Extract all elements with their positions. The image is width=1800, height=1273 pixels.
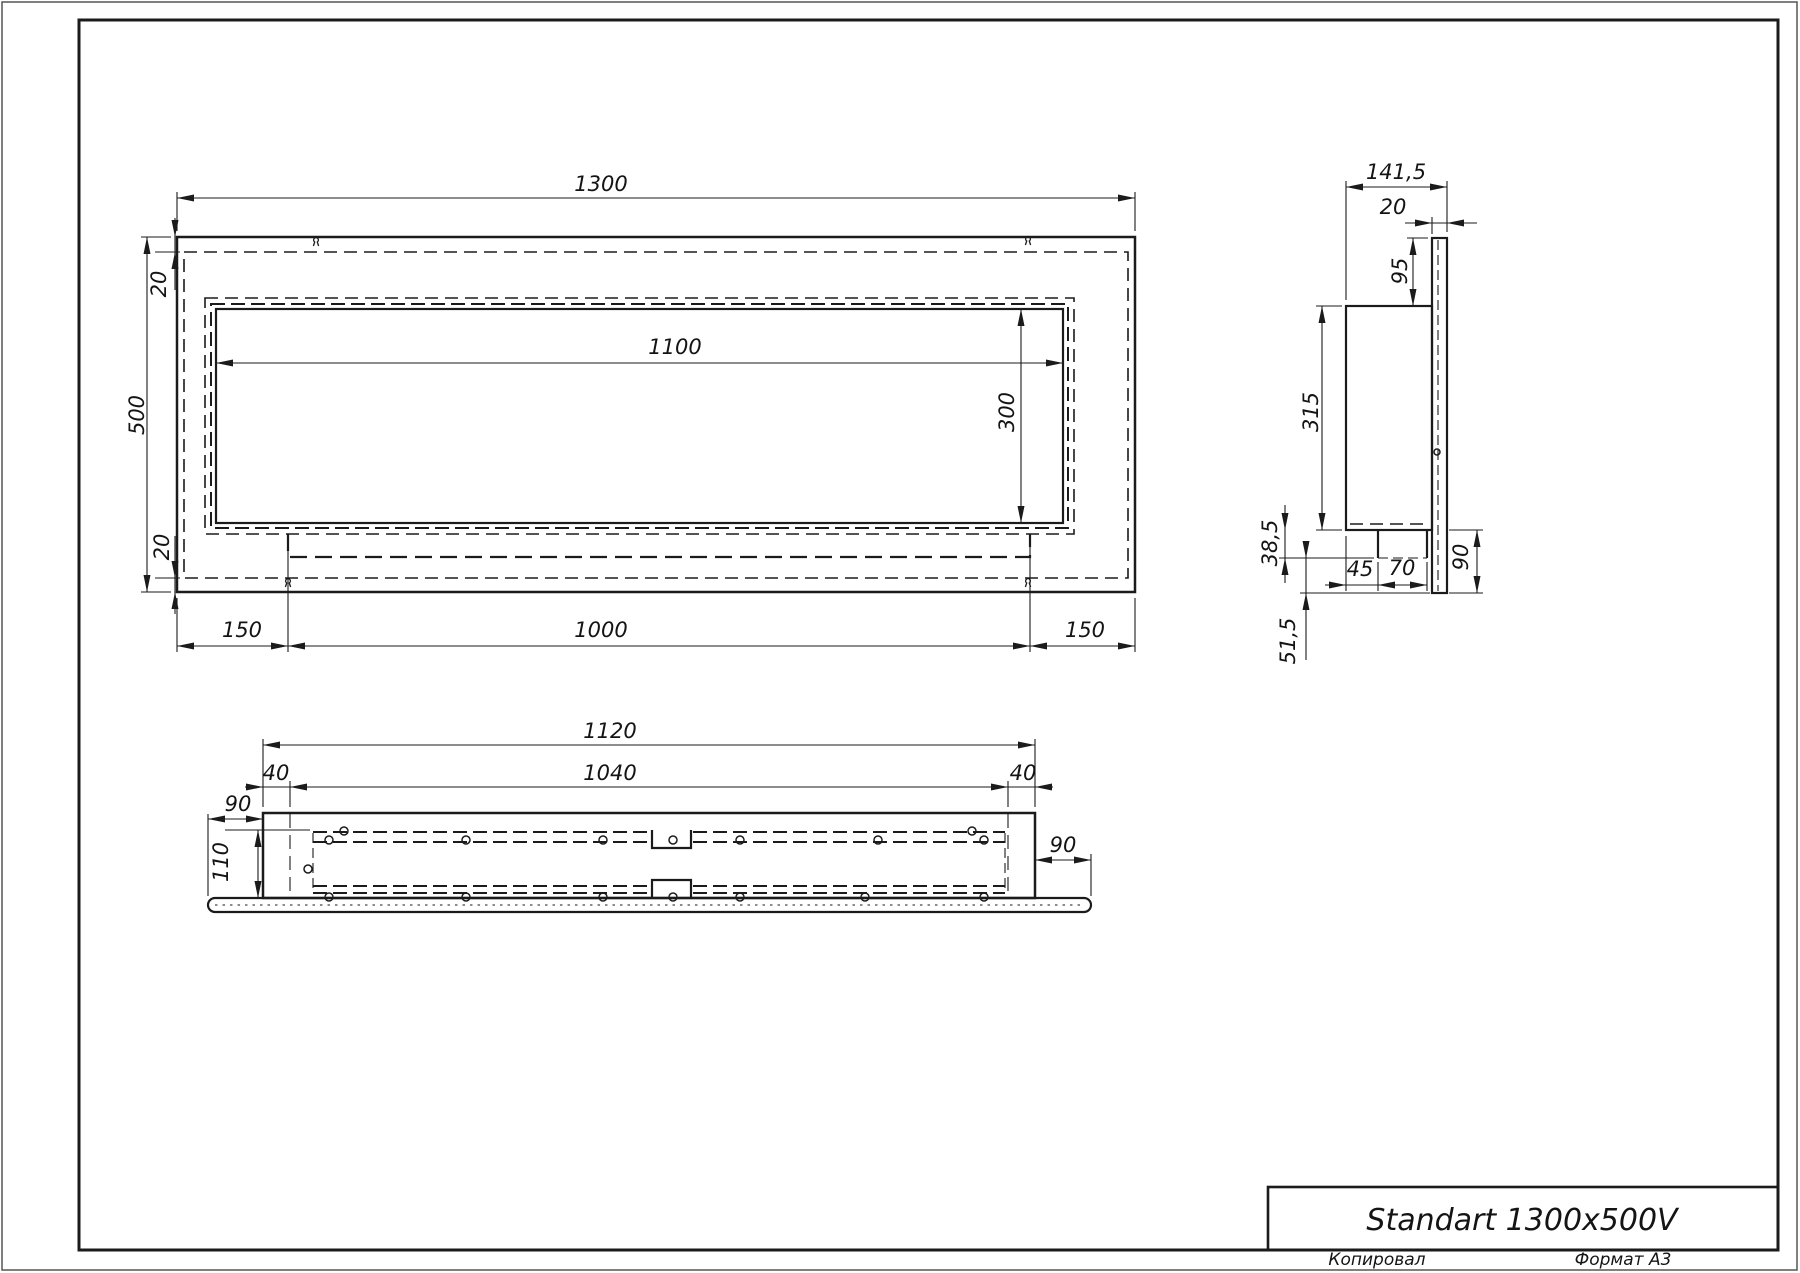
front-dim-top-inset: 20: [147, 218, 180, 297]
side-view: 141,5 20 95 315 38,5 51,5: [1258, 160, 1483, 664]
side-dim-flange: 20: [1380, 195, 1477, 234]
plan-dim-body-width-label: 1120: [583, 719, 636, 743]
side-dim-tank-chain: 45 70: [1325, 536, 1427, 591]
side-dim-tank-width-label: 70: [1389, 556, 1416, 580]
title-block: Standart 1300x500V: [1268, 1187, 1778, 1250]
drawing-canvas: 1300 500 20 20 1100 300: [0, 0, 1800, 1273]
front-view: 1300 500 20 20 1100 300: [125, 172, 1135, 652]
side-dim-tank-inset-label: 45: [1347, 557, 1374, 581]
plan-clip-top: [652, 830, 691, 848]
side-dim-body-height-label: 315: [1299, 392, 1323, 432]
front-dim-bottom-inset: 20: [150, 534, 180, 614]
front-hidden-inset: [184, 252, 1128, 578]
footer-copied-label: Копировал: [1328, 1250, 1425, 1270]
front-opening-hidden-1: [211, 304, 1068, 528]
side-dim-depth-label: 141,5: [1366, 160, 1426, 184]
plan-dim-right-overhang-label: 90: [1050, 833, 1077, 857]
plan-dim-right-inset-label: 40: [1010, 761, 1037, 785]
plan-hidden-verticals: [290, 814, 1008, 897]
plan-dim-left-overhang-label: 90: [225, 792, 252, 816]
plan-dim-body-width: 1120: [263, 719, 1035, 807]
footer-format-label: Формат А3: [1575, 1250, 1672, 1270]
side-front-flange: [1432, 238, 1447, 593]
side-dim-bottom-drop-label: 90: [1449, 544, 1473, 571]
plan-holes: [304, 827, 988, 901]
plan-dim-burner-chain: 1040 40 40: [245, 761, 1053, 807]
front-dim-bottom-inset-label: 20: [150, 534, 174, 561]
side-dim-spout-drop-label: 51,5: [1276, 618, 1300, 665]
plan-dim-body-depth: 110: [209, 830, 310, 898]
front-dim-width-label: 1300: [574, 172, 627, 196]
plan-clip-bottom: [652, 880, 691, 898]
front-dim-opening-height: 300: [995, 309, 1025, 523]
plan-burner-hidden: [313, 832, 1005, 893]
plan-dim-right-overhang: 90: [1035, 833, 1091, 896]
front-dim-width: 1300: [177, 172, 1135, 231]
front-dim-right-margin-label: 150: [1065, 618, 1105, 642]
front-dim-top-inset-label: 20: [147, 271, 171, 298]
front-outline: [177, 237, 1135, 592]
front-dim-left-margin-label: 150: [222, 618, 262, 642]
front-opening-hidden-2: [205, 298, 1074, 534]
front-dim-height-label: 500: [125, 395, 149, 435]
side-dim-flange-label: 20: [1380, 195, 1407, 219]
footer: Копировал Формат А3: [1328, 1250, 1671, 1270]
drawing-sheet: 1300 500 20 20 1100 300: [0, 0, 1800, 1273]
title-block-title: Standart 1300x500V: [1366, 1203, 1680, 1238]
front-dim-opening-width: 1100: [216, 335, 1063, 367]
front-fuel-container-hidden: [288, 534, 1030, 557]
front-dim-burner-width-label: 1000: [574, 618, 627, 642]
plan-dim-burner-width-label: 1040: [583, 761, 636, 785]
plan-view: 1120 1040 40 40 90 90 110: [208, 719, 1091, 912]
side-tank-walls: [1378, 530, 1427, 558]
drawing-frame: [79, 20, 1778, 1250]
front-dim-opening-width-label: 1100: [648, 335, 701, 359]
side-dim-tank-drop-label: 38,5: [1258, 520, 1282, 567]
plan-dim-left-inset-label: 40: [263, 761, 290, 785]
front-dim-opening-height-label: 300: [995, 392, 1019, 432]
side-dim-top-drop-label: 95: [1388, 258, 1412, 285]
side-dim-body-height: 315: [1299, 306, 1342, 530]
plan-dim-body-depth-label: 110: [209, 842, 233, 882]
side-dim-bottom-drop: 90: [1449, 530, 1483, 593]
side-body: [1346, 306, 1432, 530]
front-opening: [216, 309, 1063, 523]
page-border: [2, 2, 1797, 1270]
side-hole: [1434, 449, 1440, 455]
side-dim-top-drop: 95: [1388, 238, 1428, 306]
